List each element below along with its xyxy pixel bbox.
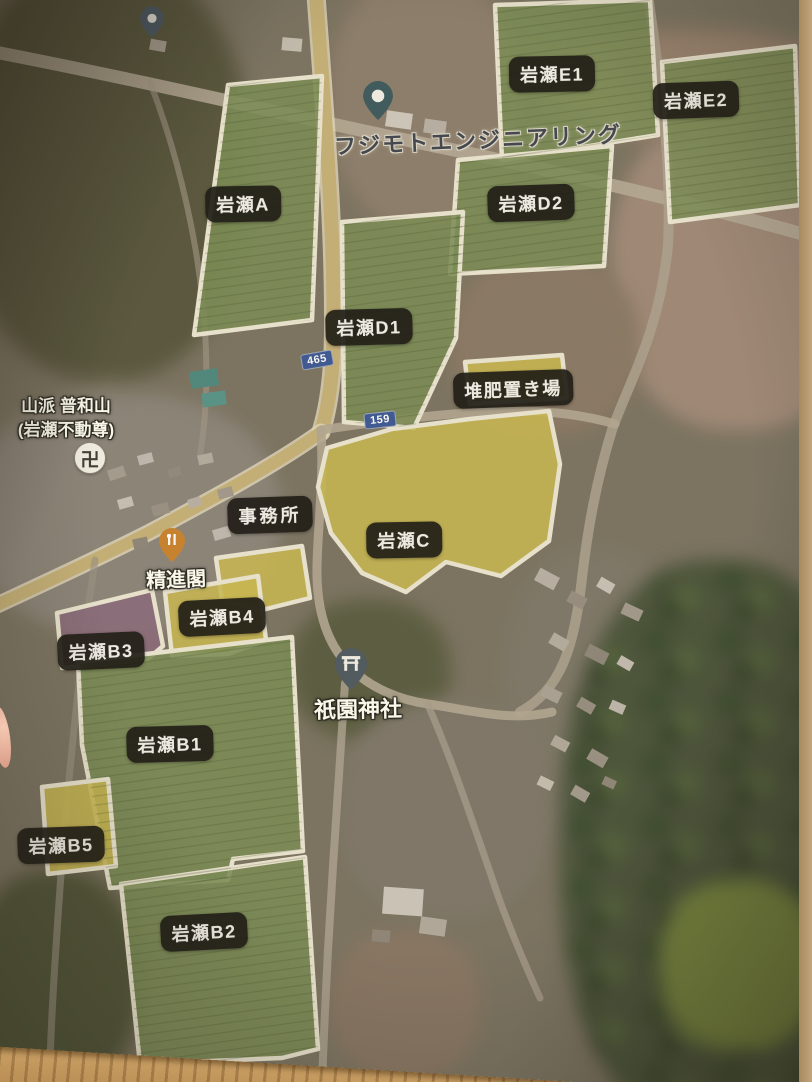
temple-name-line2: (岩瀬不動尊): [18, 416, 114, 441]
temple-manji-icon: 卍: [74, 442, 106, 474]
parcel-label-iwase-a: 岩瀬A: [205, 185, 281, 222]
route-shield-159: 159: [363, 410, 396, 429]
table-surface-right-edge: [799, 0, 812, 1082]
parcel-label-iwase-e1: 岩瀬E1: [509, 55, 596, 92]
parcel-label-iwase-d1: 岩瀬D1: [325, 308, 413, 346]
parcel-label-iwase-b4: 岩瀬B4: [178, 597, 267, 638]
parcel-label-iwase-b1: 岩瀬B1: [126, 725, 214, 763]
restaurant-pin-icon: [159, 528, 185, 562]
manji-glyph: 卍: [80, 445, 99, 472]
aerial-map-photo: 卍 フジモトエンジニアリング 山派 普和山 (岩瀬不動尊) 精進閣 祇園神社 4…: [0, 0, 812, 1082]
company-pin-icon: [363, 81, 393, 120]
shrine-torii-icon: [335, 648, 367, 690]
parcel-label-iwase-b5: 岩瀬B5: [17, 825, 105, 864]
parcel-label-iwase-b3: 岩瀬B3: [57, 631, 146, 671]
shrine-name-label: 祇園神社: [314, 691, 403, 725]
temple-name-line1: 山派 普和山: [21, 392, 111, 417]
parcel-label-office: 事務所: [227, 496, 313, 535]
restaurant-name-label: 精進閣: [146, 562, 207, 593]
parcel-iwase-c: [318, 411, 560, 592]
parcel-label-iwase-d2: 岩瀬D2: [487, 183, 575, 222]
place-pin-icon: [140, 6, 164, 38]
parcel-label-compost-yard: 堆肥置き場: [453, 369, 574, 409]
parcel-label-iwase-e2: 岩瀬E2: [652, 81, 739, 120]
parcel-label-iwase-c: 岩瀬C: [366, 521, 442, 558]
parcel-label-iwase-b2: 岩瀬B2: [160, 912, 249, 953]
